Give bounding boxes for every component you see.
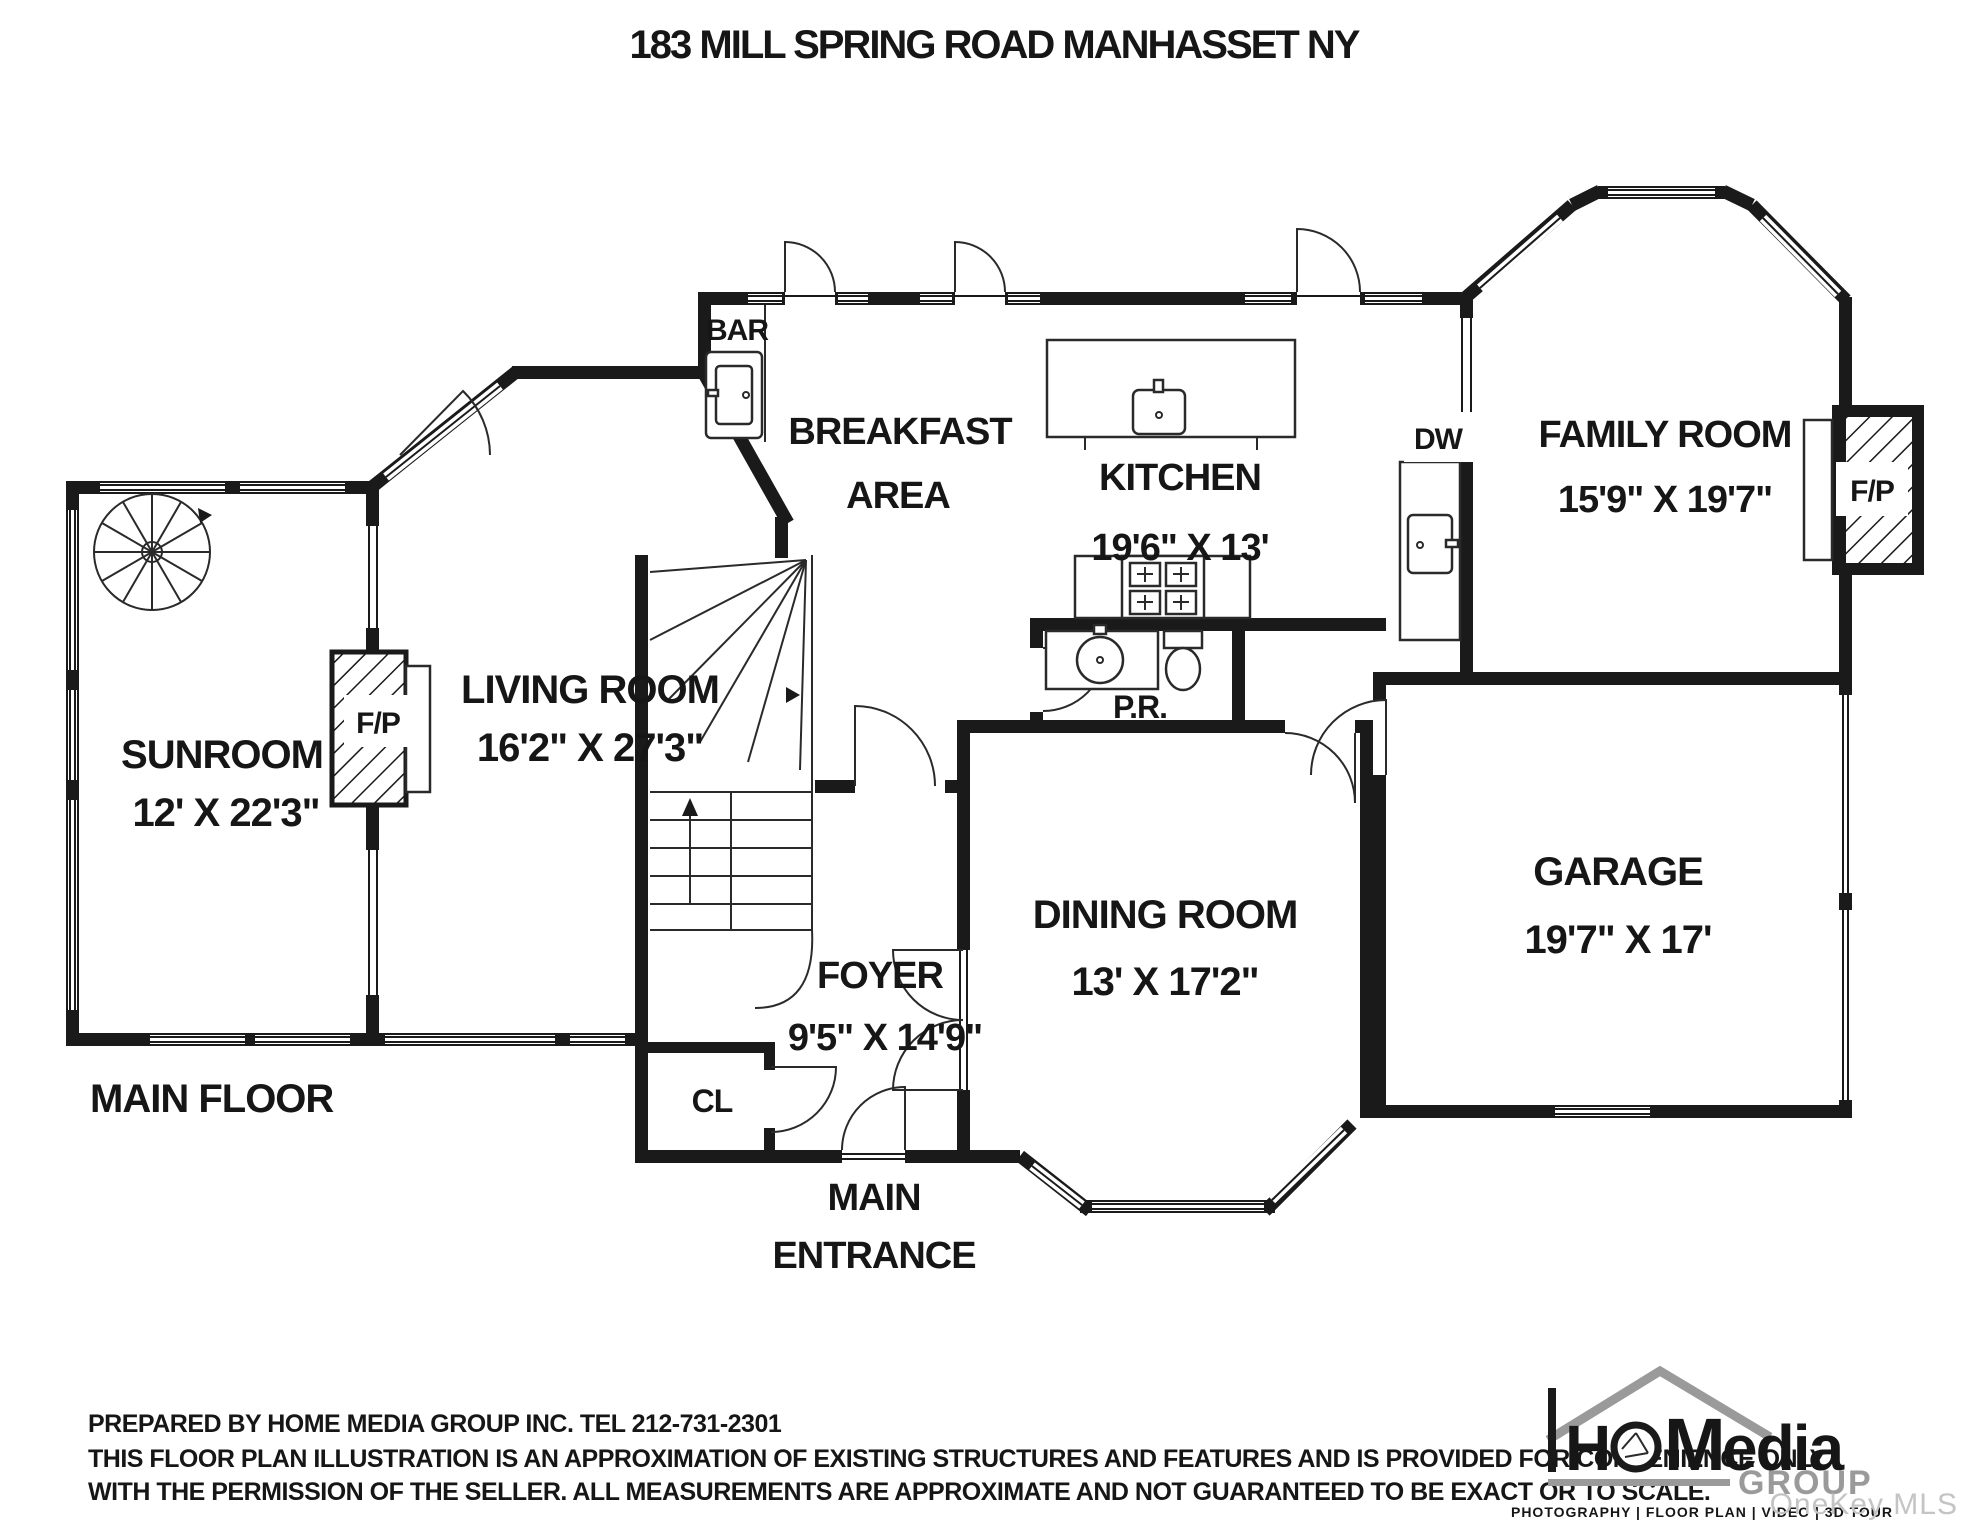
window-diagonal [1763,218,1838,294]
stair-up-arrow [682,798,698,816]
window [68,510,77,670]
room-dims-foyer: 9'5" X 14'9" [788,1017,982,1059]
room-dims-sunroom: 12' X 22'3" [132,791,319,835]
logo-text-h: H [1565,1412,1609,1484]
room-label-foyer: FOYER [817,955,943,997]
door [1311,700,1386,775]
main-floor-label: MAIN FLOOR [90,1077,334,1121]
main-entrance-label-line2: ENTRANCE [772,1235,975,1277]
spiral-staircase [94,494,212,610]
window [385,1035,555,1044]
room-label-breakfast-line2: AREA [846,475,950,517]
room-label-kitchen: KITCHEN [1099,457,1261,499]
interior-window [369,850,377,995]
room-label-dining: DINING ROOM [1033,893,1298,937]
window [748,294,782,303]
spiral-arrow [198,508,212,523]
fireplace-living: F/P [332,652,430,805]
window [1555,1107,1650,1116]
interior-window [1462,318,1471,412]
dishwasher: DW [1404,412,1474,462]
fireplace-family: F/P [1804,405,1924,575]
window-diagonal [1272,1130,1344,1200]
page-title: 183 MILL SPRING ROAD MANHASSET NY [630,23,1361,67]
window [1365,294,1422,303]
logo-text-m: M [1664,1403,1726,1486]
floor-plan: 183 MILL SPRING ROAD MANHASSET NY [0,0,1988,1536]
main-staircase [650,555,812,1008]
main-entrance-label-line1: MAIN [827,1177,920,1219]
stair-turn-arrow [786,687,800,703]
window-diagonal [386,386,500,477]
window-diagonal [1032,1166,1082,1205]
door [1297,229,1360,305]
room-label-sunroom: SUNROOM [121,733,323,777]
room-label-family: FAMILY ROOM [1539,414,1792,456]
door [785,242,835,305]
room-label-bar: BAR [706,314,769,347]
prepared-by-text: PREPARED BY HOME MEDIA GROUP INC. TEL 21… [88,1410,782,1438]
garage-door [1841,910,1850,1100]
door-closet [771,1067,836,1132]
garage-door [1841,695,1850,893]
kitchen-counter-sink [1400,462,1460,640]
room-label-closet: CL [692,1083,733,1119]
onekey-mls-watermark: OneKey MLS [1770,1488,1958,1521]
room-label-garage: GARAGE [1533,850,1703,894]
door [955,242,1005,305]
dishwasher-label: DW [1414,423,1464,456]
window [68,690,77,780]
window [1608,188,1715,197]
room-dims-kitchen: 19'6" X 13' [1091,527,1268,569]
disclaimer-line2: WITH THE PERMISSION OF THE SELLER. ALL M… [88,1478,1710,1506]
window [255,1035,350,1044]
camera-aperture-icon [1614,1425,1658,1469]
door [1285,720,1355,803]
window [1245,294,1291,303]
fireplace-label: F/P [356,707,400,740]
window [1092,1202,1264,1211]
window-diagonal [1480,218,1560,288]
window [838,294,868,303]
powder-room-fixtures [1046,625,1202,690]
interior-window [369,526,377,628]
room-label-powder-room: P.R. [1113,689,1167,725]
window [68,800,77,1010]
room-label-living: LIVING ROOM [461,668,719,712]
window [100,483,225,492]
window [1008,294,1040,303]
door [855,706,945,793]
room-dims-garage: 19'7" X 17' [1524,918,1711,962]
floor-plan-page: 183 MILL SPRING ROAD MANHASSET NY [0,0,1988,1536]
door-main-entrance [842,1087,905,1163]
window [570,1035,625,1044]
room-dims-family: 15'9" X 19'7" [1558,479,1772,521]
room-dims-dining: 13' X 17'2" [1071,960,1258,1004]
window [150,1035,245,1044]
kitchen-island [1047,340,1295,450]
fireplace-label: F/P [1850,475,1894,508]
room-label-breakfast-line1: BREAKFAST [788,411,1012,453]
room-dims-living: 16'2" X 27'3" [477,726,703,770]
window [920,294,952,303]
window [240,483,345,492]
